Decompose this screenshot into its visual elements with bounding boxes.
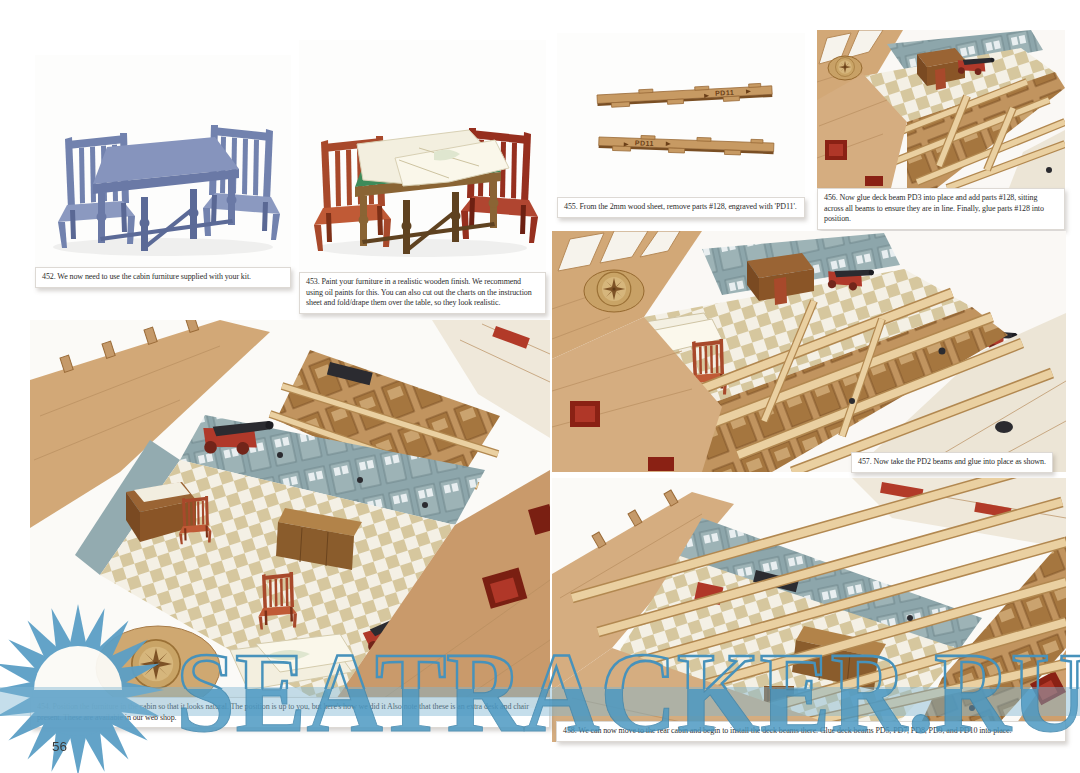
caption-454: 454. Position the furniture in the cabin… [30, 697, 550, 728]
manual-page: 452. We now need to use the cabin furnit… [0, 0, 1080, 773]
photo-458 [552, 478, 1066, 742]
caption-457: 457. Now take the PD2 beams and glue int… [851, 452, 1053, 473]
caption-457-text: 457. Now take the PD2 beams and glue int… [858, 457, 1046, 466]
photo-456 [817, 30, 1065, 188]
caption-453-text: 453. Paint your furniture in a realistic… [306, 277, 532, 307]
gunport [648, 457, 674, 471]
photo-452 [35, 55, 291, 267]
photo-453 [299, 40, 546, 270]
pd11-engraving-1: PD11 [715, 89, 734, 97]
photo-455: PD11 PD11 [557, 33, 805, 196]
caption-452-text: 452. We now need to use the cabin furnit… [42, 272, 251, 281]
caption-452: 452. We now need to use the cabin furnit… [35, 267, 291, 288]
caption-458: 458. We can now move to the rear cabin a… [556, 721, 1066, 742]
caption-456-text: 456. Now glue deck beam PD3 into place a… [824, 193, 1044, 223]
caption-455: 455. From the 2mm wood sheet, remove par… [557, 197, 805, 218]
compass-rose-deck [96, 626, 220, 708]
caption-455-text: 455. From the 2mm wood sheet, remove par… [564, 202, 797, 211]
mast-hole [995, 421, 1013, 433]
photo-457 [552, 231, 1066, 472]
caption-454-text: 454. Position the furniture in the cabin… [37, 702, 529, 722]
caption-456: 456. Now glue deck beam PD3 into place a… [817, 188, 1065, 230]
round-table [584, 270, 644, 312]
caption-453: 453. Paint your furniture in a realistic… [299, 272, 546, 314]
photo-454 [30, 320, 550, 708]
round-table [828, 56, 862, 80]
gunport [865, 176, 883, 186]
page-number: 56 [52, 739, 67, 754]
caption-458-text: 458. We can now move to the rear cabin a… [563, 726, 1011, 735]
pd11-engraving-2: PD11 [635, 139, 654, 147]
